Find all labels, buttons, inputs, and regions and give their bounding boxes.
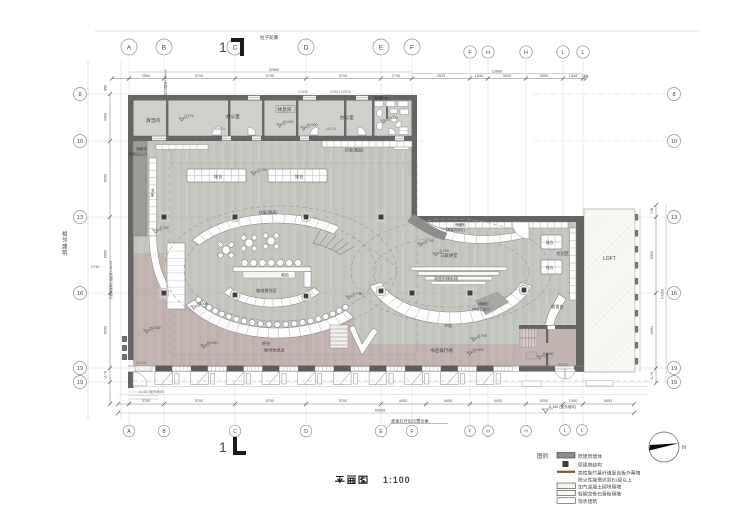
svg-text:5700: 5700 [266,399,274,403]
svg-text:架: 架 [151,193,155,198]
svg-text:L: L [582,50,585,56]
svg-text:6000: 6000 [104,326,108,334]
svg-text:H: H [486,429,489,434]
svg-text:±0.000: ±0.000 [307,123,318,127]
svg-text:6092: 6092 [650,326,654,334]
svg-text:高性能竹基纤维复合板外幕墙: 高性能竹基纤维复合板外幕墙 [578,470,641,477]
svg-text:M1024: M1024 [326,127,336,131]
svg-text:书架(通高): 书架(通高) [344,147,364,154]
svg-text:A: A [127,44,132,51]
svg-text:1:100: 1:100 [383,475,411,485]
svg-text:图例：: 图例： [537,452,553,460]
svg-text:原建筑结构: 原建筑结构 [578,462,602,469]
svg-text:8: 8 [672,92,675,98]
svg-text:现状建筑: 现状建筑 [578,498,597,505]
svg-text:1170: 1170 [650,372,654,380]
svg-text:吧台: 吧台 [281,272,289,278]
svg-text:加气混凝土砌块隔墙: 加气混凝土砌块隔墙 [578,483,621,490]
svg-text:2580: 2580 [142,74,150,78]
svg-text:5700: 5700 [195,74,203,78]
svg-text:C2430: C2430 [298,90,308,94]
svg-text:3690: 3690 [503,74,511,78]
svg-text:6300: 6300 [650,251,654,259]
svg-text:M0924: M0924 [383,94,393,98]
svg-text:-0.700: -0.700 [257,168,267,172]
svg-text:6000: 6000 [104,174,108,182]
svg-text:1: 1 [219,39,227,55]
svg-text:F: F [469,429,472,434]
svg-text:演变阶梯处理: 演变阶梯处理 [434,275,458,281]
svg-text:19: 19 [77,380,83,386]
svg-text:-0.180 (室外地坪): -0.180 (室外地坪) [548,404,576,409]
svg-text:原建筑墙体: 原建筑墙体 [578,453,602,460]
svg-text:5700: 5700 [339,74,347,78]
svg-text:F: F [410,429,413,435]
svg-text:±0.000: ±0.000 [473,348,484,352]
svg-text:±0.000: ±0.000 [283,120,294,124]
svg-text:与相邻建筑外墙距离4700mm: 与相邻建筑外墙距离4700mm [108,260,113,299]
svg-text:-0.700: -0.700 [477,334,487,338]
svg-text:5700: 5700 [339,399,347,403]
svg-text:16: 16 [77,291,83,297]
svg-text:LOFT: LOFT [603,256,616,262]
svg-text:咖啡休息区: 咖啡休息区 [264,347,285,354]
svg-text:相: 相 [62,230,67,238]
svg-text:书架(通高): 书架(通高) [258,209,278,216]
svg-text:(带家具设计): (带家具设计) [128,152,147,157]
svg-text:-0.180 (室外地坪): -0.180 (室外地坪) [138,389,164,394]
svg-text:办公室: 办公室 [226,113,240,120]
svg-text:1508: 1508 [569,74,577,78]
svg-text:-0.700: -0.700 [352,292,362,296]
svg-text:建: 建 [62,242,68,250]
svg-text:吧台: 吧台 [262,340,270,347]
svg-text:14200: 14200 [661,289,665,300]
svg-text:2700: 2700 [392,74,400,78]
svg-text:堆台: 堆台 [546,265,554,270]
svg-text:3400: 3400 [104,113,108,121]
svg-text:D: D [304,44,309,51]
svg-text:N1024: N1024 [215,127,225,131]
svg-text:±0.000: ±0.000 [150,326,161,330]
svg-text:E: E [379,44,384,51]
svg-text:6900: 6900 [104,250,108,258]
svg-text:3000: 3000 [540,74,548,78]
svg-text:10: 10 [671,139,677,145]
svg-text:19: 19 [671,380,677,386]
svg-text:±0.000: ±0.000 [387,116,398,120]
svg-text:书架: 书架 [444,322,452,328]
svg-text:C0924 C0916: C0924 C0916 [330,90,351,94]
svg-text:堆台: 堆台 [546,240,554,245]
svg-text:堆台: 堆台 [295,173,303,180]
svg-text:H: H [524,50,528,56]
svg-text:(带家具设计): (带家具设计) [446,227,465,232]
svg-text:5200: 5200 [540,399,548,403]
svg-text:轻钢龙骨石膏板隔墙: 轻钢龙骨石膏板隔墙 [578,490,621,497]
svg-text:F: F [468,50,471,56]
svg-text:1540: 1540 [475,74,483,78]
svg-text:10: 10 [77,139,83,145]
svg-text:盖板打开后位置示意: 盖板打开后位置示意 [391,418,429,425]
svg-text:4523: 4523 [437,74,445,78]
svg-text:4593: 4593 [604,399,612,403]
svg-text:4400: 4400 [494,399,502,403]
svg-text:13: 13 [77,215,83,221]
svg-text:防火性能需达到B1级以上: 防火性能需达到B1级以上 [578,476,632,483]
svg-text:L: L [562,50,565,56]
svg-text:±0.000: ±0.000 [197,302,208,306]
svg-text:-0.700: -0.700 [439,249,449,253]
svg-text:4405: 4405 [444,399,452,403]
svg-text:(带家具设计): (带家具设计) [472,307,491,312]
svg-text:4400: 4400 [399,399,407,403]
svg-text:5700: 5700 [266,74,274,78]
svg-text:储藏柜: 储藏柜 [455,222,466,227]
svg-text:19: 19 [671,366,677,372]
svg-text:960: 960 [104,85,108,91]
svg-text:3700: 3700 [142,399,150,403]
svg-text:书店排行榜: 书店排行榜 [430,347,453,354]
svg-text:19: 19 [77,366,83,372]
svg-text:堆台: 堆台 [214,173,222,180]
svg-text:L: L [564,428,567,433]
svg-text:-0.700: -0.700 [424,239,434,243]
svg-text:1170: 1170 [104,371,108,379]
svg-text:C: C [233,44,238,51]
svg-text:±0.000: ±0.000 [207,341,218,345]
svg-text:D: D [304,429,308,435]
svg-text:H: H [524,429,527,434]
svg-text:咖啡操作区: 咖啡操作区 [256,287,277,294]
svg-text:C: C [233,429,237,435]
svg-text:N: N [682,445,686,451]
svg-text:M1530: M1530 [136,361,146,365]
svg-text:文创区: 文创区 [556,250,570,257]
svg-text:16: 16 [671,291,677,297]
svg-text:储藏柜: 储藏柜 [478,301,489,306]
svg-text:-0.700: -0.700 [159,226,169,230]
svg-text:22660: 22660 [269,68,280,72]
svg-text:拉子蛇寨: 拉子蛇寨 [260,34,279,41]
svg-text:13680: 13680 [492,69,503,73]
svg-text:办公室: 办公室 [340,114,354,121]
svg-text:收银台: 收银台 [551,303,564,310]
svg-text:2740: 2740 [91,265,99,269]
svg-text:±0.000: ±0.000 [543,352,554,356]
svg-text:三联讲堂: 三联讲堂 [440,252,458,259]
svg-text:0.175: 0.175 [185,114,194,118]
svg-text:书: 书 [151,188,155,193]
svg-text:H: H [486,50,490,56]
svg-text:储藏柜: 储藏柜 [136,146,147,151]
svg-text:60005: 60005 [375,409,386,413]
svg-text:8: 8 [78,92,81,98]
svg-text:筑: 筑 [62,249,68,257]
svg-text:L: L [581,428,584,433]
svg-text:F: F [410,44,414,51]
svg-text:5700: 5700 [195,399,203,403]
svg-text:1: 1 [219,439,227,455]
svg-text:1300: 1300 [569,399,577,403]
svg-text:180: 180 [582,74,588,78]
svg-text:13: 13 [671,215,677,221]
svg-text:休息间: 休息间 [278,106,292,113]
svg-text:清洁间: 清洁间 [146,117,160,124]
svg-text:718: 718 [650,208,654,214]
svg-text:邻: 邻 [62,236,68,244]
svg-text:B: B [162,44,167,51]
